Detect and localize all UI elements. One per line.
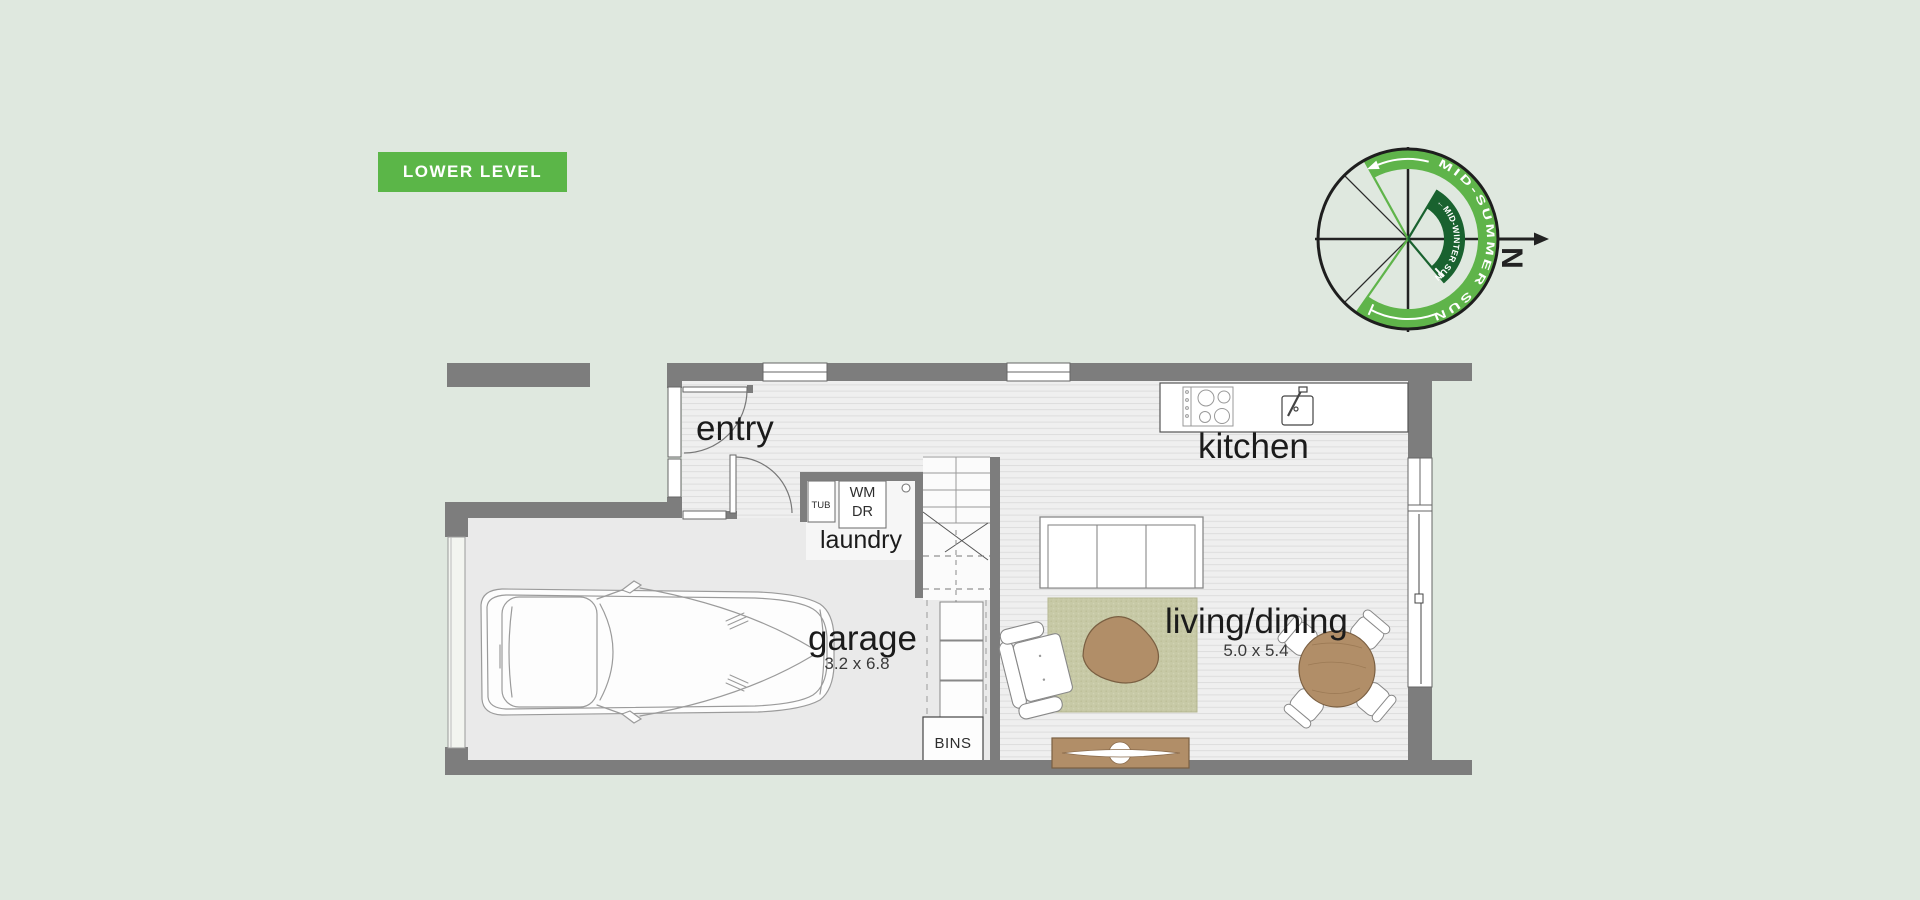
bins-label: BINS — [923, 736, 983, 751]
window — [668, 459, 681, 497]
north-arrow-icon: N — [1495, 233, 1549, 269]
right-wall-upper — [1408, 381, 1432, 458]
bottom-wall — [448, 760, 1472, 775]
garage-top-wall — [448, 502, 682, 518]
kitchen-counter — [1160, 383, 1408, 432]
living-dining-dimensions: 5.0 x 5.4 — [1216, 642, 1296, 659]
floor-plan-drawing — [440, 353, 1480, 783]
garage-dimensions: 3.2 x 6.8 — [817, 655, 897, 672]
floor-drain-icon — [902, 484, 910, 492]
sun-compass: MID-SUMMER SUN ←MID-WINTER SUN N — [1298, 130, 1573, 355]
sofa-icon — [1040, 517, 1203, 588]
entry-door-leaf — [683, 387, 747, 392]
laundry-label: laundry — [820, 528, 902, 553]
freestanding-wall — [447, 363, 590, 387]
garage-label: garage — [808, 621, 917, 656]
tub-label: TUB — [807, 501, 835, 511]
living-dining-label: living/dining — [1165, 604, 1348, 639]
garage-divider-wall — [990, 457, 1000, 760]
dining-table-icon — [1299, 631, 1375, 707]
floor-plan-page: LOWER LEVEL — [0, 0, 1920, 900]
right-wall-lower — [1408, 687, 1432, 762]
tv-unit-icon — [1052, 738, 1189, 768]
car-icon — [481, 581, 834, 723]
garage-door-leaf — [730, 455, 736, 513]
window — [668, 387, 681, 457]
laundry-wall — [800, 472, 915, 481]
washing-machine-label: WM — [839, 486, 886, 501]
level-badge: LOWER LEVEL — [378, 152, 567, 192]
stair-wall — [915, 472, 923, 598]
entry-label: entry — [696, 411, 774, 446]
kitchen-label: kitchen — [1198, 429, 1309, 464]
north-label: N — [1495, 247, 1528, 269]
dryer-label: DR — [839, 505, 886, 520]
cooktop-icon — [1183, 387, 1233, 426]
threshold — [683, 511, 726, 519]
